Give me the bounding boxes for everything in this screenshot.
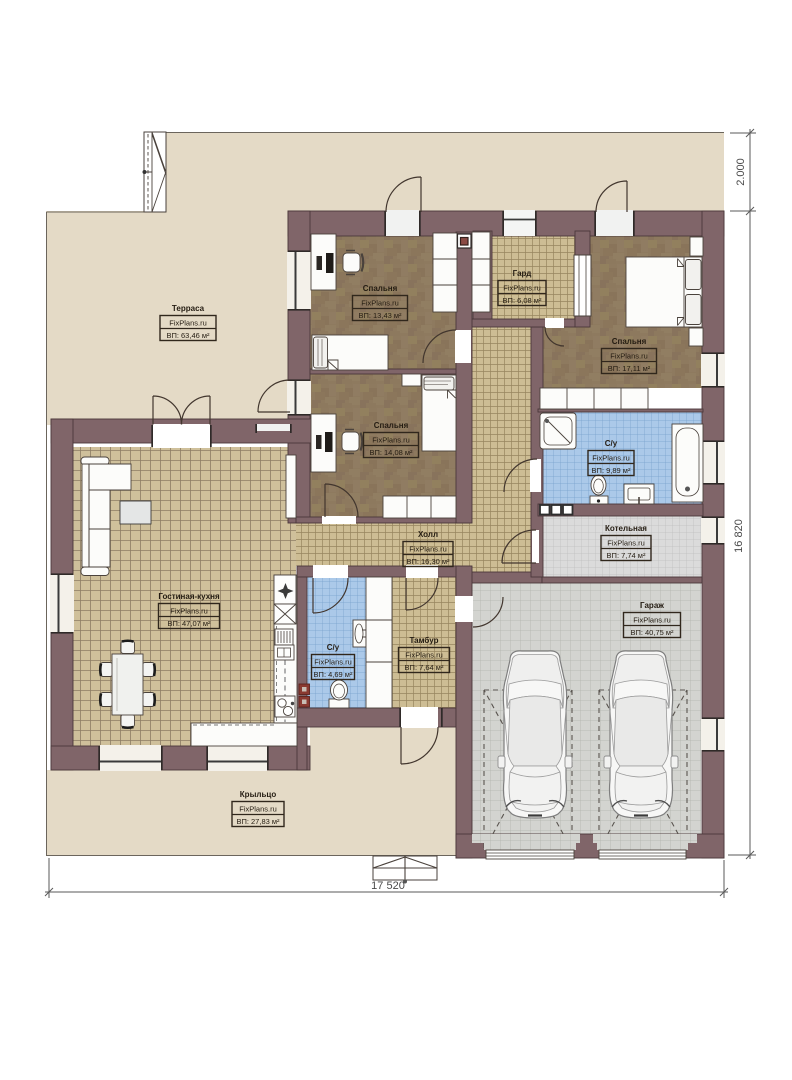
svg-text:FixPlans.ru: FixPlans.ru <box>607 539 645 548</box>
svg-text:ВП: 27,83 м²: ВП: 27,83 м² <box>236 817 280 826</box>
svg-text:FixPlans.ru: FixPlans.ru <box>633 616 671 625</box>
svg-text:ВП: 40,75 м²: ВП: 40,75 м² <box>630 628 674 637</box>
svg-text:FixPlans.ru: FixPlans.ru <box>314 658 352 667</box>
svg-text:Гараж: Гараж <box>640 601 664 610</box>
svg-text:ВП: 4,69 м²: ВП: 4,69 м² <box>314 670 353 679</box>
svg-text:ВП: 9,89 м²: ВП: 9,89 м² <box>592 466 631 475</box>
svg-text:ВП: 6,08 м²: ВП: 6,08 м² <box>503 296 542 305</box>
svg-text:Котельная: Котельная <box>605 524 647 533</box>
svg-text:ВП: 14,08 м²: ВП: 14,08 м² <box>369 448 413 457</box>
svg-text:ВП: 17,11 м²: ВП: 17,11 м² <box>608 364 651 373</box>
svg-text:17 520: 17 520 <box>371 880 405 892</box>
svg-text:ВП: 47,07 м²: ВП: 47,07 м² <box>167 619 211 628</box>
svg-text:FixPlans.ru: FixPlans.ru <box>409 545 447 554</box>
svg-text:Спальня: Спальня <box>363 284 398 293</box>
svg-text:Гард: Гард <box>513 269 532 278</box>
svg-text:FixPlans.ru: FixPlans.ru <box>610 352 648 361</box>
svg-text:2.000: 2.000 <box>735 158 747 186</box>
svg-text:16 820: 16 820 <box>733 519 745 553</box>
svg-text:FixPlans.ru: FixPlans.ru <box>169 319 207 328</box>
svg-text:FixPlans.ru: FixPlans.ru <box>372 436 410 445</box>
svg-text:FixPlans.ru: FixPlans.ru <box>405 651 443 660</box>
svg-text:Гостиная-кухня: Гостиная-кухня <box>158 592 220 601</box>
svg-text:Спальня: Спальня <box>612 337 647 346</box>
svg-text:С/у: С/у <box>605 439 618 448</box>
svg-text:ВП: 7,74 м²: ВП: 7,74 м² <box>607 551 646 560</box>
svg-text:Тамбур: Тамбур <box>409 636 438 645</box>
svg-text:ВП: 13,43 м²: ВП: 13,43 м² <box>358 311 402 320</box>
svg-text:Крыльцо: Крыльцо <box>240 790 277 799</box>
svg-text:FixPlans.ru: FixPlans.ru <box>170 607 208 616</box>
svg-text:FixPlans.ru: FixPlans.ru <box>239 805 277 814</box>
svg-text:FixPlans.ru: FixPlans.ru <box>592 454 630 463</box>
svg-text:ВП: 63,46 м²: ВП: 63,46 м² <box>166 331 210 340</box>
svg-text:FixPlans.ru: FixPlans.ru <box>503 284 541 293</box>
svg-text:FixPlans.ru: FixPlans.ru <box>361 299 399 308</box>
svg-text:С/у: С/у <box>327 643 340 652</box>
svg-text:Холл: Холл <box>418 530 438 539</box>
svg-text:ВП: 16,30 м²: ВП: 16,30 м² <box>406 557 450 566</box>
svg-text:ВП: 7,64 м²: ВП: 7,64 м² <box>405 663 444 672</box>
svg-text:Спальня: Спальня <box>374 421 409 430</box>
svg-text:Терраса: Терраса <box>172 304 205 313</box>
